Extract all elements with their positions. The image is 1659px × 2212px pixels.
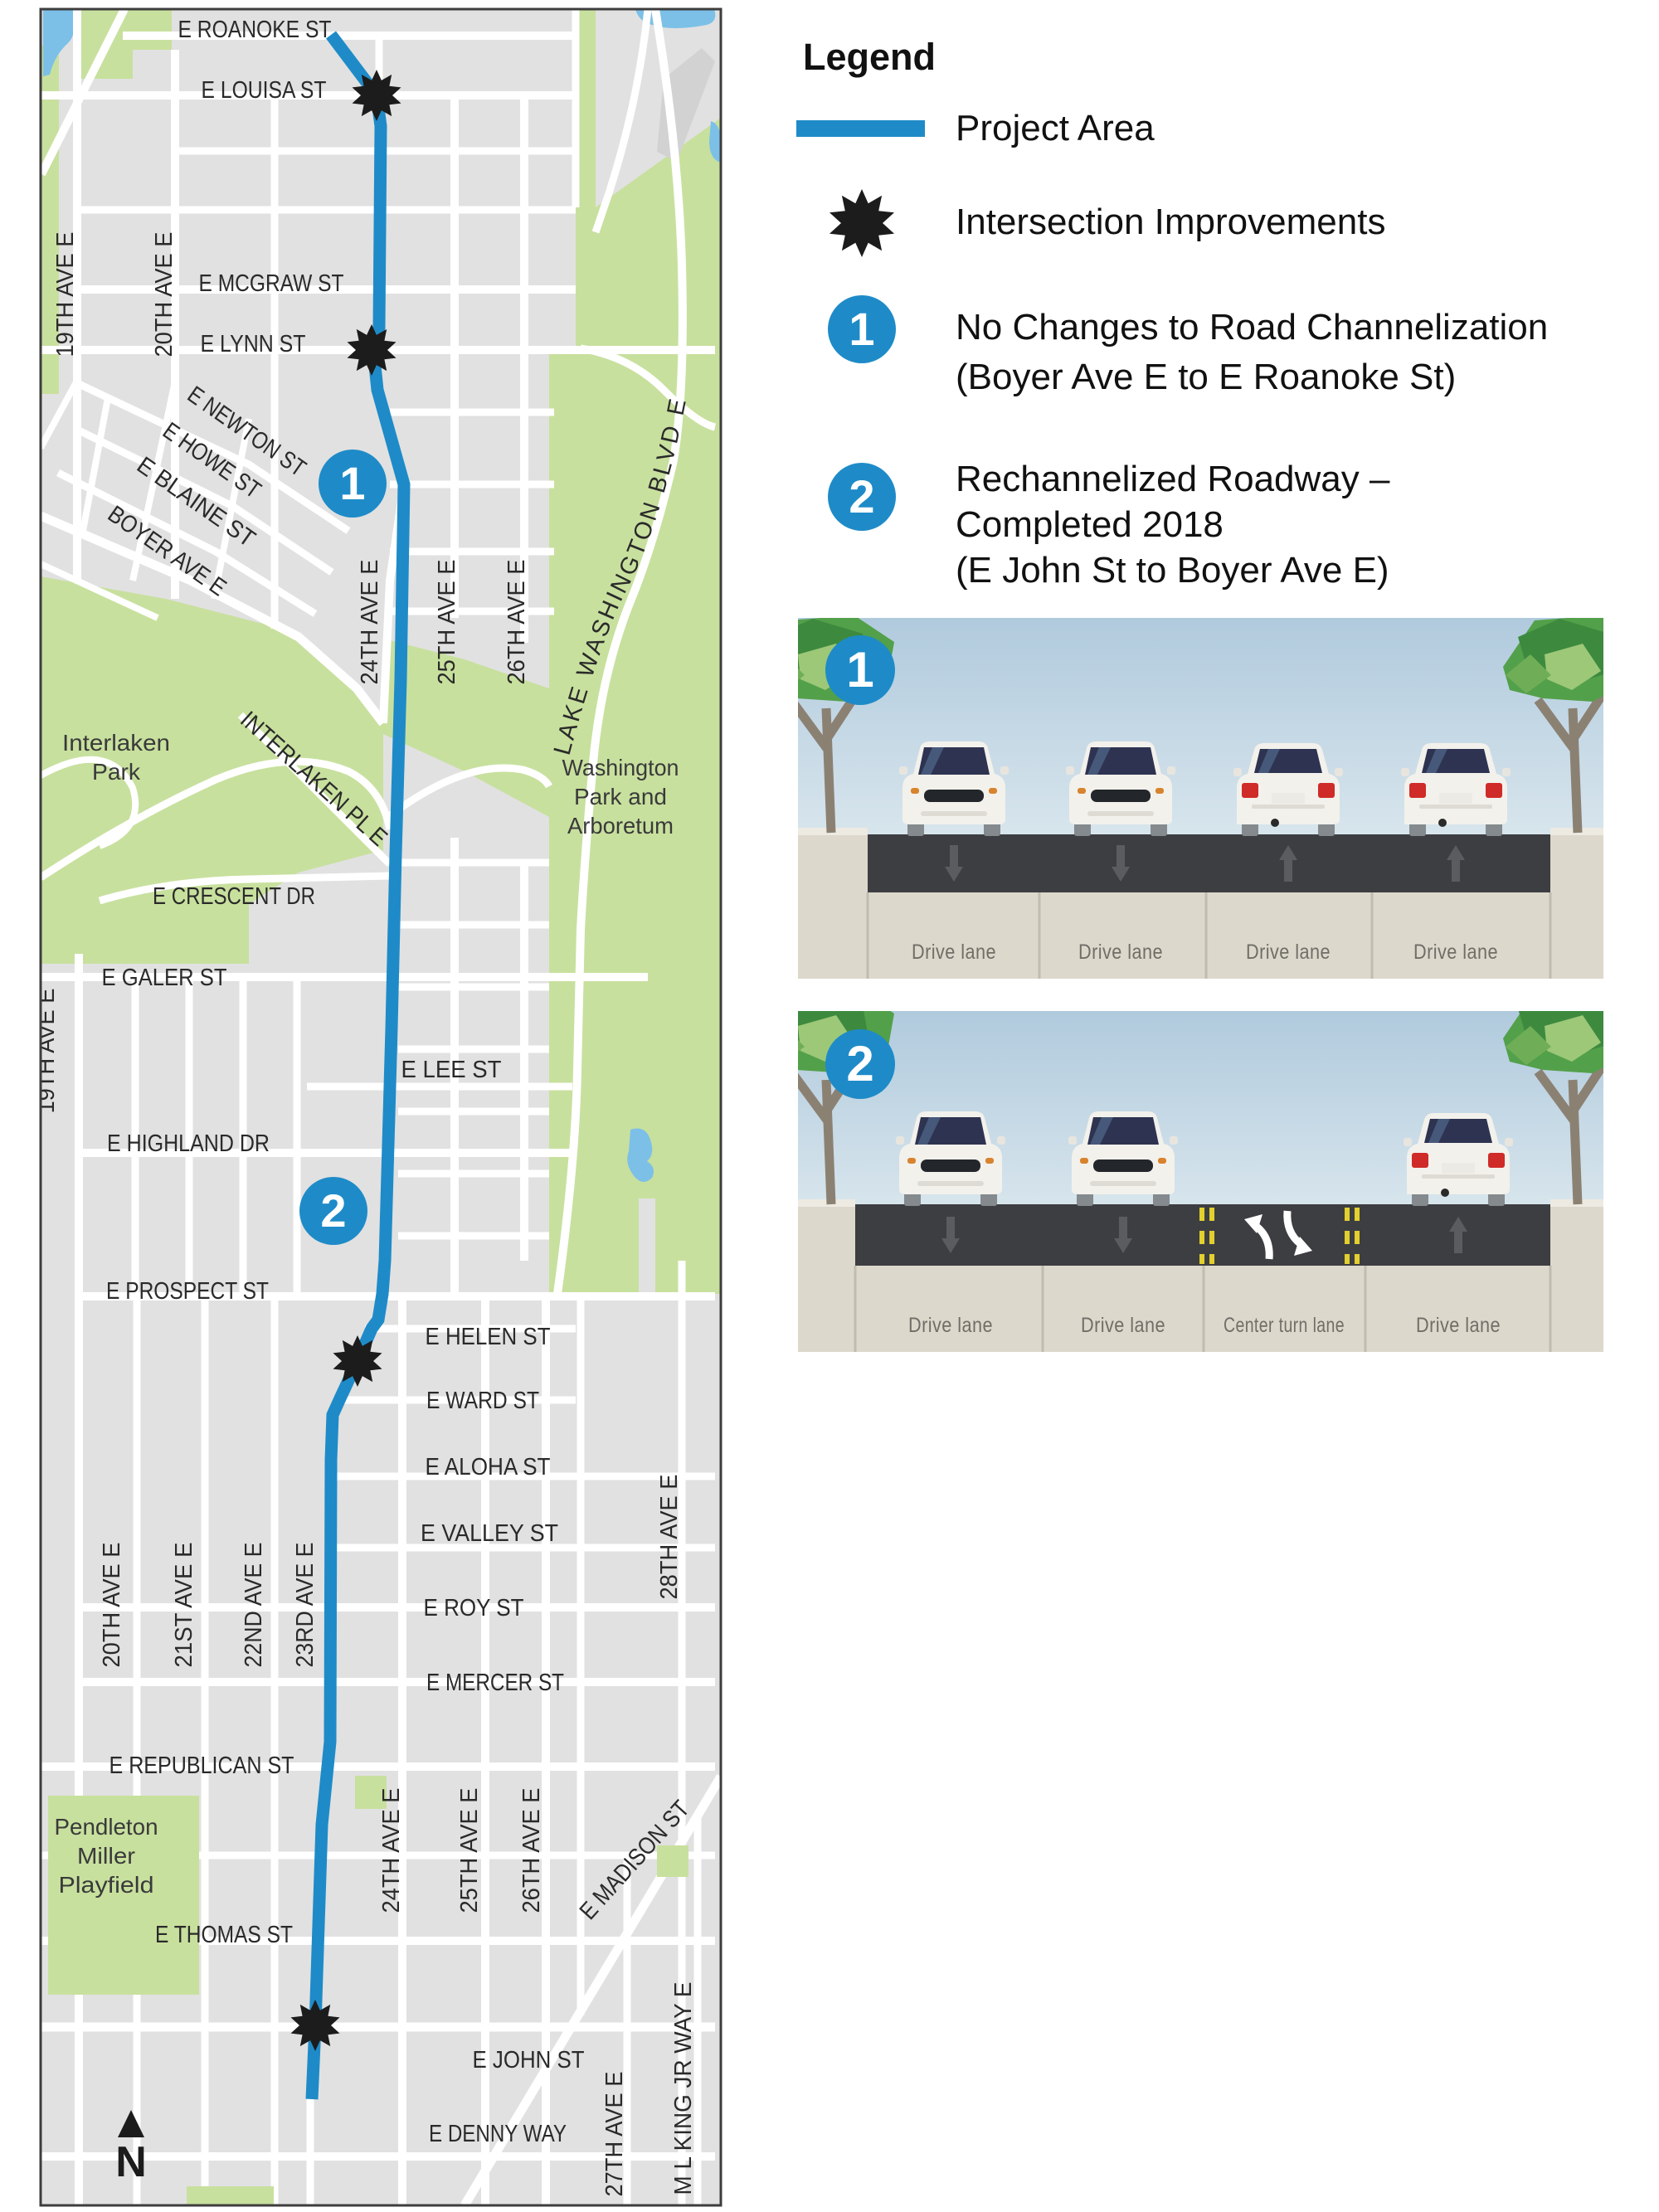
svg-text:(Boyer Ave E to E Roanoke St): (Boyer Ave E to E Roanoke St) xyxy=(956,357,1456,397)
svg-text:Park: Park xyxy=(92,759,141,785)
svg-text:E VALLEY ST: E VALLEY ST xyxy=(421,1520,558,1547)
svg-text:E HELEN ST: E HELEN ST xyxy=(426,1324,551,1350)
svg-text:Drive lane: Drive lane xyxy=(912,941,996,964)
svg-text:E WARD ST: E WARD ST xyxy=(426,1388,539,1414)
svg-text:1: 1 xyxy=(339,457,365,509)
svg-text:1: 1 xyxy=(849,303,874,355)
svg-text:Arboretum: Arboretum xyxy=(567,813,674,839)
svg-text:19TH AVE E: 19TH AVE E xyxy=(33,989,60,1114)
svg-text:Drive lane: Drive lane xyxy=(1246,941,1331,964)
svg-text:E REPUBLICAN ST: E REPUBLICAN ST xyxy=(109,1753,294,1779)
svg-text:Playfield: Playfield xyxy=(59,1872,154,1898)
svg-text:Drive lane: Drive lane xyxy=(1416,1314,1501,1337)
svg-text:E DENNY WAY: E DENNY WAY xyxy=(429,2121,567,2147)
svg-text:25TH AVE E: 25TH AVE E xyxy=(456,1788,483,1913)
svg-text:1: 1 xyxy=(846,642,873,698)
svg-text:(E John St to Boyer Ave E): (E John St to Boyer Ave E) xyxy=(956,550,1389,591)
svg-text:Drive lane: Drive lane xyxy=(1078,941,1163,964)
svg-text:E PROSPECT ST: E PROSPECT ST xyxy=(106,1278,269,1305)
svg-text:20TH AVE E: 20TH AVE E xyxy=(99,1543,125,1668)
svg-text:Pendleton: Pendleton xyxy=(55,1814,158,1840)
svg-text:22ND AVE E: 22ND AVE E xyxy=(241,1543,267,1668)
svg-text:Miller: Miller xyxy=(77,1843,135,1869)
svg-text:Completed 2018: Completed 2018 xyxy=(956,504,1224,545)
svg-text:2: 2 xyxy=(846,1036,873,1091)
svg-text:E LOUISA ST: E LOUISA ST xyxy=(202,77,327,104)
svg-text:E ROY ST: E ROY ST xyxy=(424,1595,524,1621)
svg-text:20TH AVE E: 20TH AVE E xyxy=(151,232,178,357)
svg-text:Project Area: Project Area xyxy=(956,108,1155,148)
svg-text:23RD AVE E: 23RD AVE E xyxy=(292,1543,319,1668)
svg-text:Park and: Park and xyxy=(574,784,667,809)
svg-text:Center turn lane: Center turn lane xyxy=(1224,1314,1345,1337)
svg-text:19TH AVE E: 19TH AVE E xyxy=(52,232,79,357)
svg-text:E MCGRAW ST: E MCGRAW ST xyxy=(199,270,344,297)
svg-text:2: 2 xyxy=(320,1184,346,1237)
svg-text:E ALOHA ST: E ALOHA ST xyxy=(426,1454,551,1480)
svg-text:E CRESCENT DR: E CRESCENT DR xyxy=(153,883,315,910)
svg-text:M L KING JR WAY E: M L KING JR WAY E xyxy=(670,1982,697,2195)
svg-text:25TH AVE E: 25TH AVE E xyxy=(434,560,460,685)
svg-text:Drive lane: Drive lane xyxy=(1081,1314,1165,1337)
svg-text:N: N xyxy=(115,2138,147,2186)
svg-text:E LEE ST: E LEE ST xyxy=(401,1057,502,1083)
svg-text:Interlaken: Interlaken xyxy=(62,730,170,756)
svg-text:E MERCER ST: E MERCER ST xyxy=(426,1670,564,1696)
svg-text:24TH AVE E: 24TH AVE E xyxy=(357,560,383,685)
svg-text:E LYNN ST: E LYNN ST xyxy=(201,331,306,357)
svg-text:26TH AVE E: 26TH AVE E xyxy=(518,1788,545,1913)
svg-text:E JOHN ST: E JOHN ST xyxy=(473,2047,585,2073)
svg-text:21ST AVE E: 21ST AVE E xyxy=(171,1543,197,1668)
svg-text:Washington: Washington xyxy=(562,755,679,780)
svg-text:24TH AVE E: 24TH AVE E xyxy=(378,1788,405,1913)
svg-text:E ROANOKE ST: E ROANOKE ST xyxy=(178,17,332,43)
svg-text:Legend: Legend xyxy=(803,36,936,78)
svg-text:No Changes to Road Channelizat: No Changes to Road Channelization xyxy=(956,307,1548,348)
svg-text:Drive lane: Drive lane xyxy=(1413,941,1498,964)
svg-text:28TH AVE E: 28TH AVE E xyxy=(656,1475,683,1600)
svg-text:E THOMAS ST: E THOMAS ST xyxy=(155,1922,293,1948)
svg-text:2: 2 xyxy=(849,470,874,523)
svg-text:E GALER ST: E GALER ST xyxy=(102,965,227,991)
svg-text:Intersection Improvements: Intersection Improvements xyxy=(956,202,1385,242)
svg-text:Rechannelized Roadway –: Rechannelized Roadway – xyxy=(956,459,1390,499)
svg-text:E HIGHLAND DR: E HIGHLAND DR xyxy=(107,1130,270,1157)
svg-text:26TH AVE E: 26TH AVE E xyxy=(504,560,530,685)
svg-text:Drive lane: Drive lane xyxy=(908,1314,993,1337)
svg-text:27TH AVE E: 27TH AVE E xyxy=(601,2072,628,2197)
